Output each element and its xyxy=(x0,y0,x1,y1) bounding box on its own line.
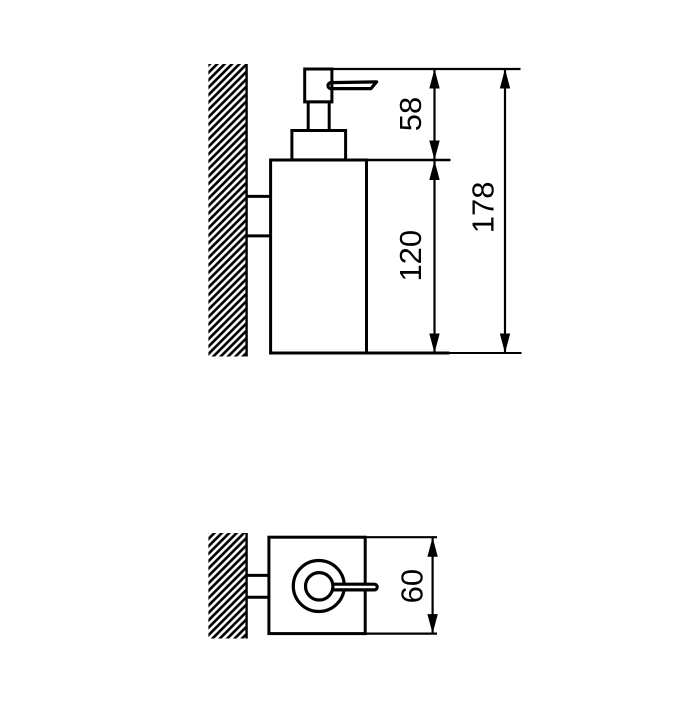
svg-text:120: 120 xyxy=(393,230,428,282)
svg-text:60: 60 xyxy=(394,569,429,603)
svg-text:58: 58 xyxy=(393,97,428,131)
svg-text:178: 178 xyxy=(465,182,500,234)
